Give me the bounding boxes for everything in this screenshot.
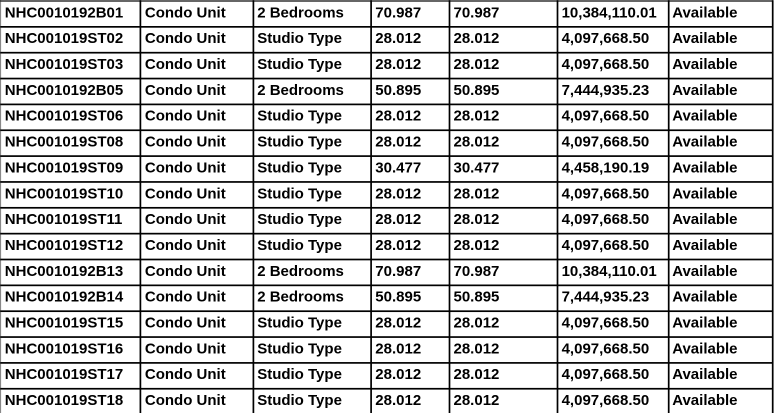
svg-text:Available: Available — [672, 237, 737, 254]
svg-text:Studio Type: Studio Type — [257, 56, 342, 73]
svg-text:NHC0010192B05: NHC0010192B05 — [5, 82, 123, 99]
svg-text:70.987: 70.987 — [454, 263, 500, 280]
svg-text:28.012: 28.012 — [454, 108, 500, 125]
svg-text:28.012: 28.012 — [454, 30, 500, 47]
svg-text:Condo Unit: Condo Unit — [145, 237, 226, 254]
svg-text:28.012: 28.012 — [375, 392, 421, 409]
svg-text:4,097,668.50: 4,097,668.50 — [562, 56, 650, 73]
svg-text:28.012: 28.012 — [375, 134, 421, 151]
svg-text:NHC001019ST17: NHC001019ST17 — [5, 366, 123, 383]
svg-text:Available: Available — [672, 315, 737, 332]
svg-text:Available: Available — [672, 159, 737, 176]
svg-text:4,097,668.50: 4,097,668.50 — [562, 108, 650, 125]
svg-text:NHC001019ST11: NHC001019ST11 — [5, 211, 123, 228]
svg-text:4,097,668.50: 4,097,668.50 — [562, 237, 650, 254]
svg-text:Condo Unit: Condo Unit — [145, 289, 226, 306]
svg-text:NHC001019ST10: NHC001019ST10 — [5, 185, 123, 202]
svg-text:NHC001019ST12: NHC001019ST12 — [5, 237, 123, 254]
svg-text:Condo Unit: Condo Unit — [145, 4, 226, 21]
svg-text:10,384,110.01: 10,384,110.01 — [562, 4, 657, 21]
svg-text:28.012: 28.012 — [375, 366, 421, 383]
svg-text:70.987: 70.987 — [454, 4, 500, 21]
svg-text:4,097,668.50: 4,097,668.50 — [562, 185, 650, 202]
svg-text:28.012: 28.012 — [375, 30, 421, 47]
svg-text:28.012: 28.012 — [375, 340, 421, 357]
svg-text:50.895: 50.895 — [375, 289, 421, 306]
svg-text:NHC0010192B13: NHC0010192B13 — [5, 263, 123, 280]
svg-text:28.012: 28.012 — [454, 134, 500, 151]
svg-text:NHC001019ST03: NHC001019ST03 — [5, 56, 123, 73]
svg-text:50.895: 50.895 — [454, 289, 500, 306]
svg-text:4,097,668.50: 4,097,668.50 — [562, 340, 650, 357]
svg-text:NHC001019ST09: NHC001019ST09 — [5, 159, 123, 176]
svg-text:Available: Available — [672, 108, 737, 125]
svg-text:4,097,668.50: 4,097,668.50 — [562, 134, 650, 151]
svg-text:Condo Unit: Condo Unit — [145, 30, 226, 47]
svg-text:NHC001019ST06: NHC001019ST06 — [5, 108, 123, 125]
svg-text:28.012: 28.012 — [375, 56, 421, 73]
svg-text:Available: Available — [672, 56, 737, 73]
svg-text:28.012: 28.012 — [454, 211, 500, 228]
svg-text:Studio Type: Studio Type — [257, 159, 342, 176]
svg-text:50.895: 50.895 — [454, 82, 500, 99]
svg-text:NHC0010192B14: NHC0010192B14 — [5, 289, 124, 306]
svg-text:Studio Type: Studio Type — [257, 237, 342, 254]
svg-text:Studio Type: Studio Type — [257, 185, 342, 202]
svg-text:NHC001019ST16: NHC001019ST16 — [5, 340, 123, 357]
svg-text:28.012: 28.012 — [454, 366, 500, 383]
svg-text:28.012: 28.012 — [454, 315, 500, 332]
svg-text:Condo Unit: Condo Unit — [145, 366, 226, 383]
svg-text:28.012: 28.012 — [454, 56, 500, 73]
svg-text:Available: Available — [672, 263, 737, 280]
svg-text:2 Bedrooms: 2 Bedrooms — [257, 263, 344, 280]
svg-text:Available: Available — [672, 289, 737, 306]
svg-text:Condo Unit: Condo Unit — [145, 211, 226, 228]
svg-text:Studio Type: Studio Type — [257, 392, 342, 409]
svg-text:Condo Unit: Condo Unit — [145, 134, 226, 151]
svg-text:Condo Unit: Condo Unit — [145, 263, 226, 280]
svg-text:Available: Available — [672, 185, 737, 202]
svg-text:Studio Type: Studio Type — [257, 366, 342, 383]
svg-text:30.477: 30.477 — [375, 159, 421, 176]
svg-text:70.987: 70.987 — [375, 4, 421, 21]
svg-text:28.012: 28.012 — [375, 185, 421, 202]
svg-text:7,444,935.23: 7,444,935.23 — [562, 82, 650, 99]
svg-text:Condo Unit: Condo Unit — [145, 82, 226, 99]
svg-text:Studio Type: Studio Type — [257, 134, 342, 151]
svg-text:Condo Unit: Condo Unit — [145, 108, 226, 125]
svg-text:Available: Available — [672, 134, 737, 151]
svg-text:NHC001019ST02: NHC001019ST02 — [5, 30, 123, 47]
svg-text:Studio Type: Studio Type — [257, 211, 342, 228]
svg-text:28.012: 28.012 — [375, 315, 421, 332]
svg-text:Studio Type: Studio Type — [257, 30, 342, 47]
svg-text:Studio Type: Studio Type — [257, 108, 342, 125]
svg-text:Condo Unit: Condo Unit — [145, 315, 226, 332]
svg-text:NHC0010192B01: NHC0010192B01 — [5, 4, 123, 21]
svg-text:NHC001019ST18: NHC001019ST18 — [5, 392, 123, 409]
svg-text:4,097,668.50: 4,097,668.50 — [562, 366, 650, 383]
svg-text:30.477: 30.477 — [454, 159, 500, 176]
svg-text:4,097,668.50: 4,097,668.50 — [562, 392, 650, 409]
svg-text:NHC001019ST15: NHC001019ST15 — [5, 315, 123, 332]
svg-text:Available: Available — [672, 340, 737, 357]
svg-text:28.012: 28.012 — [454, 392, 500, 409]
svg-text:NHC001019ST08: NHC001019ST08 — [5, 134, 123, 151]
svg-text:Available: Available — [672, 82, 737, 99]
svg-text:70.987: 70.987 — [375, 263, 421, 280]
svg-text:50.895: 50.895 — [375, 82, 421, 99]
svg-text:Condo Unit: Condo Unit — [145, 392, 226, 409]
svg-text:10,384,110.01: 10,384,110.01 — [562, 263, 657, 280]
svg-text:28.012: 28.012 — [375, 237, 421, 254]
svg-text:Condo Unit: Condo Unit — [145, 340, 226, 357]
svg-text:4,097,668.50: 4,097,668.50 — [562, 211, 650, 228]
svg-text:Available: Available — [672, 211, 737, 228]
svg-text:Studio Type: Studio Type — [257, 315, 342, 332]
svg-text:Available: Available — [672, 30, 737, 47]
svg-text:28.012: 28.012 — [454, 340, 500, 357]
svg-text:28.012: 28.012 — [454, 185, 500, 202]
svg-text:Available: Available — [672, 392, 737, 409]
svg-text:7,444,935.23: 7,444,935.23 — [562, 289, 650, 306]
svg-text:Studio Type: Studio Type — [257, 340, 342, 357]
svg-text:Available: Available — [672, 366, 737, 383]
svg-text:28.012: 28.012 — [375, 108, 421, 125]
svg-text:Condo Unit: Condo Unit — [145, 185, 226, 202]
svg-text:28.012: 28.012 — [454, 237, 500, 254]
svg-text:2 Bedrooms: 2 Bedrooms — [257, 82, 344, 99]
svg-text:2 Bedrooms: 2 Bedrooms — [257, 289, 344, 306]
svg-text:4,097,668.50: 4,097,668.50 — [562, 30, 650, 47]
svg-text:4,458,190.19: 4,458,190.19 — [562, 159, 650, 176]
svg-text:Condo Unit: Condo Unit — [145, 159, 226, 176]
svg-text:Available: Available — [672, 4, 737, 21]
svg-text:28.012: 28.012 — [375, 211, 421, 228]
svg-text:4,097,668.50: 4,097,668.50 — [562, 315, 650, 332]
svg-text:2 Bedrooms: 2 Bedrooms — [257, 4, 344, 21]
svg-text:Condo Unit: Condo Unit — [145, 56, 226, 73]
